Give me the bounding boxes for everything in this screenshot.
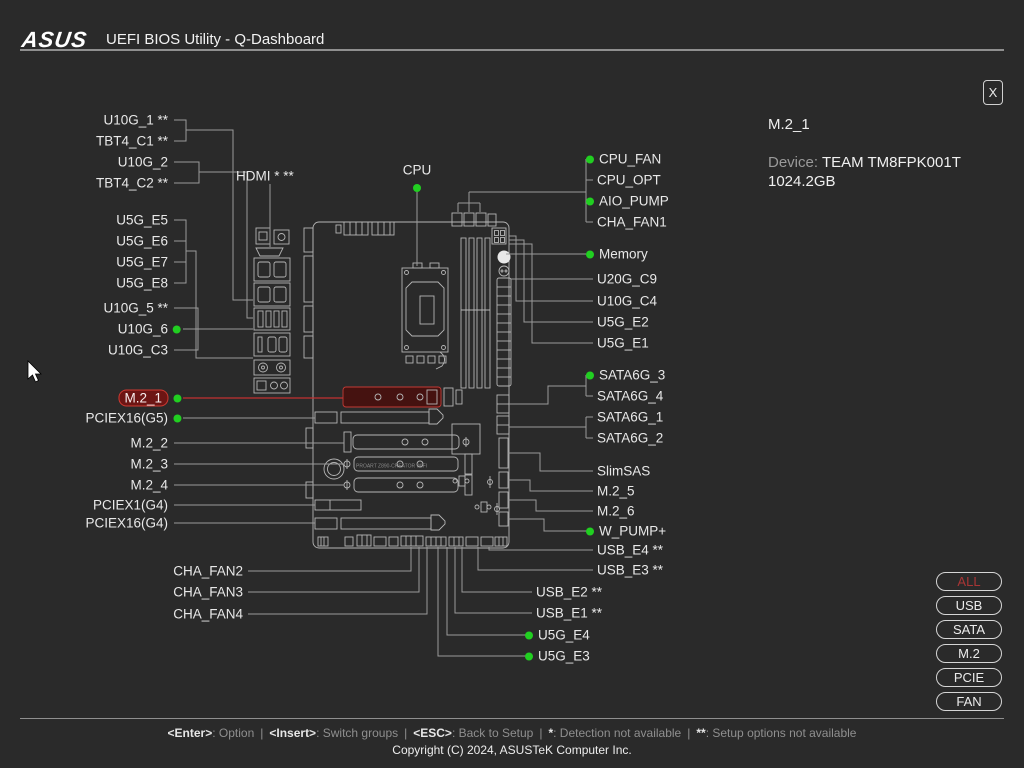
connector-label-u10g-6[interactable]: U10G_6	[118, 322, 181, 337]
help-key-double-asterisk: **	[696, 726, 705, 740]
connector-label-u5g-e8[interactable]: U5G_E8	[116, 276, 168, 291]
connector-label-text: M.2_6	[597, 504, 635, 519]
connector-label-text: USB_E1 **	[536, 606, 602, 621]
connector-label-cha-fan4[interactable]: CHA_FAN4	[173, 607, 243, 622]
connector-label-text: AIO_PUMP	[599, 194, 669, 209]
connector-line	[508, 453, 593, 471]
connector-label-hdmi[interactable]: HDMI * **	[236, 169, 294, 184]
help-key-enter: <Enter>	[168, 726, 213, 740]
footer-divider	[20, 718, 1004, 719]
connector-label-text: U5G_E2	[597, 315, 649, 330]
connector-label-text: SlimSAS	[597, 464, 650, 479]
connector-line	[508, 519, 592, 531]
connector-label-u20g-c9[interactable]: U20G_C9	[597, 272, 657, 287]
connector-label-text: CPU_FAN	[599, 152, 661, 167]
connector-label-usb-e3[interactable]: USB_E3 **	[597, 563, 663, 578]
connector-label-tbt4-c1[interactable]: TBT4_C1 **	[96, 134, 168, 149]
connector-label-u5g-e2[interactable]: U5G_E2	[597, 315, 649, 330]
connector-label-text: U10G_1 **	[103, 113, 168, 128]
connector-label-pciex16-g5[interactable]: PCIEX16(G5)	[85, 411, 181, 426]
connector-label-text: M.2_3	[130, 457, 168, 472]
device-present-dot	[173, 414, 181, 422]
connector-label-u5g-e7[interactable]: U5G_E7	[116, 255, 168, 270]
connector-label-text: W_PUMP+	[599, 524, 666, 539]
connector-line	[186, 251, 253, 358]
connector-label-text: HDMI * **	[236, 169, 294, 184]
device-present-dot	[525, 631, 533, 639]
connector-label-cpu[interactable]: CPU	[403, 163, 432, 178]
connector-label-tbt4-c2[interactable]: TBT4_C2 **	[96, 176, 168, 191]
connector-label-u5g-e1[interactable]: U5G_E1	[597, 336, 649, 351]
connector-label-text: PCIEX16(G4)	[85, 516, 168, 531]
connector-label-text: CPU	[403, 163, 432, 178]
connector-label-text: U10G_2	[118, 155, 168, 170]
connector-line	[248, 547, 427, 614]
connector-label-text: Memory	[599, 247, 648, 262]
connector-label-text: SATA6G_1	[597, 410, 663, 425]
connector-label-text: M.2_4	[130, 478, 168, 493]
mouse-cursor	[28, 361, 41, 382]
connector-label-u5g-e6[interactable]: U5G_E6	[116, 234, 168, 249]
connector-label-m-2-5[interactable]: M.2_5	[597, 484, 635, 499]
connector-label-usb-e1[interactable]: USB_E1 **	[536, 606, 602, 621]
connector-label-text: USB_E2 **	[536, 585, 602, 600]
connector-label-text: CHA_FAN4	[173, 607, 243, 622]
device-present-dot	[586, 197, 594, 205]
connector-line	[509, 244, 593, 343]
status-dots	[413, 184, 421, 192]
connector-line	[455, 547, 532, 613]
connector-label-text: U5G_E1	[597, 336, 649, 351]
connector-label-usb-e4[interactable]: USB_E4 **	[597, 543, 663, 558]
connector-label-text: U5G_E7	[116, 255, 168, 270]
connector-label-u5g-e3[interactable]: U5G_E3	[525, 649, 590, 664]
connector-label-text: M.2_2	[130, 436, 168, 451]
connector-line	[508, 480, 593, 491]
connector-label-aio-pump[interactable]: AIO_PUMP	[586, 194, 669, 209]
connector-label-text: USB_E4 **	[597, 543, 663, 558]
connector-label-text: U10G_6	[118, 322, 168, 337]
connector-line	[509, 236, 593, 301]
connector-label-text: SATA6G_2	[597, 431, 663, 446]
connector-label-u10g-2[interactable]: U10G_2	[118, 155, 168, 170]
bios-q-dashboard-screen: ASUS UEFI BIOS Utility - Q-Dashboard X M…	[0, 0, 1024, 768]
connector-label-text: M.2_1	[118, 390, 168, 407]
connector-label-u5g-e4[interactable]: U5G_E4	[525, 628, 590, 643]
connector-label-memory[interactable]: Memory	[586, 247, 648, 262]
help-bar: <Enter>: Option|<Insert>: Switch groups|…	[0, 726, 1024, 740]
connector-line	[509, 386, 586, 404]
device-present-dot	[586, 155, 594, 163]
connector-label-u10g-c3[interactable]: U10G_C3	[108, 343, 168, 358]
connector-label-text: SATA6G_4	[597, 389, 663, 404]
connector-line	[438, 547, 531, 656]
connector-label-text: U5G_E3	[538, 649, 590, 664]
connector-line	[447, 547, 531, 635]
connector-line	[174, 120, 186, 141]
connector-line	[174, 220, 186, 283]
connector-label-m-2-2[interactable]: M.2_2	[130, 436, 168, 451]
connector-label-pciex1-g4[interactable]: PCIEX1(G4)	[93, 498, 168, 513]
connector-label-m-2-4[interactable]: M.2_4	[130, 478, 168, 493]
board-model-text: PROART Z890-CREATOR WIFI	[356, 464, 427, 470]
connector-label-text: U5G_E8	[116, 276, 168, 291]
connector-label-text: M.2_5	[597, 484, 635, 499]
connector-label-cha-fan2[interactable]: CHA_FAN2	[173, 564, 243, 579]
connector-label-text: CHA_FAN1	[597, 215, 667, 230]
connector-label-text: U20G_C9	[597, 272, 657, 287]
connector-label-cha-fan1[interactable]: CHA_FAN1	[597, 215, 667, 230]
connector-label-sata6g-4[interactable]: SATA6G_4	[597, 389, 663, 404]
status-dot	[413, 184, 421, 192]
connector-label-cpu-fan[interactable]: CPU_FAN	[586, 152, 661, 167]
connector-label-sata6g-3[interactable]: SATA6G_3	[586, 368, 665, 383]
connector-label-w-pump[interactable]: W_PUMP+	[586, 524, 666, 539]
device-present-dot	[586, 371, 594, 379]
connector-label-usb-e2[interactable]: USB_E2 **	[536, 585, 602, 600]
connector-line	[248, 547, 411, 571]
connector-label-text: CHA_FAN3	[173, 585, 243, 600]
connector-label-m-2-6[interactable]: M.2_6	[597, 504, 635, 519]
connector-label-text: PCIEX16(G5)	[85, 411, 168, 426]
connector-line	[199, 172, 253, 318]
device-present-dot	[173, 325, 181, 333]
connector-label-m-2-1[interactable]: M.2_1	[118, 390, 181, 407]
help-key-esc: <ESC>	[413, 726, 452, 740]
connector-label-text: U5G_E5	[116, 213, 168, 228]
device-present-dot	[525, 652, 533, 660]
connector-label-u10g-1[interactable]: U10G_1 **	[103, 113, 168, 128]
connector-label-text: U5G_E4	[538, 628, 590, 643]
connector-line	[509, 240, 593, 322]
connector-label-text: U10G_C3	[108, 343, 168, 358]
connector-label-u10g-5[interactable]: U10G_5 **	[103, 301, 168, 316]
connector-label-text: TBT4_C2 **	[96, 176, 168, 191]
connector-label-slimsas[interactable]: SlimSAS	[597, 464, 650, 479]
device-present-dot	[173, 394, 181, 402]
connector-label-text: TBT4_C1 **	[96, 134, 168, 149]
help-key-insert: <Insert>	[269, 726, 316, 740]
connector-label-sata6g-1[interactable]: SATA6G_1	[597, 410, 663, 425]
copyright-text: Copyright (C) 2024, ASUSTeK Computer Inc…	[0, 743, 1024, 757]
motherboard-art: PROART Z890-CREATOR WIFI	[254, 213, 511, 548]
connector-label-cpu-opt[interactable]: CPU_OPT	[597, 173, 661, 188]
connector-label-text: CPU_OPT	[597, 173, 661, 188]
connector-line	[248, 547, 419, 592]
device-present-dot	[586, 527, 594, 535]
connector-label-text: PCIEX1(G4)	[93, 498, 168, 513]
connector-label-text: U10G_5 **	[103, 301, 168, 316]
connector-line	[174, 162, 199, 183]
connector-label-u10g-c4[interactable]: U10G_C4	[597, 294, 657, 309]
connector-label-cha-fan3[interactable]: CHA_FAN3	[173, 585, 243, 600]
connector-label-text: U5G_E6	[116, 234, 168, 249]
connector-line	[508, 500, 593, 511]
connector-label-text: USB_E3 **	[597, 563, 663, 578]
device-present-dot	[586, 250, 594, 258]
connector-label-text: CHA_FAN2	[173, 564, 243, 579]
connector-label-text: SATA6G_3	[599, 368, 665, 383]
connector-label-u5g-e5[interactable]: U5G_E5	[116, 213, 168, 228]
connector-label-text: U10G_C4	[597, 294, 657, 309]
connector-label-pciex16-g4[interactable]: PCIEX16(G4)	[85, 516, 168, 531]
connector-label-sata6g-2[interactable]: SATA6G_2	[597, 431, 663, 446]
connector-label-m-2-3[interactable]: M.2_3	[130, 457, 168, 472]
